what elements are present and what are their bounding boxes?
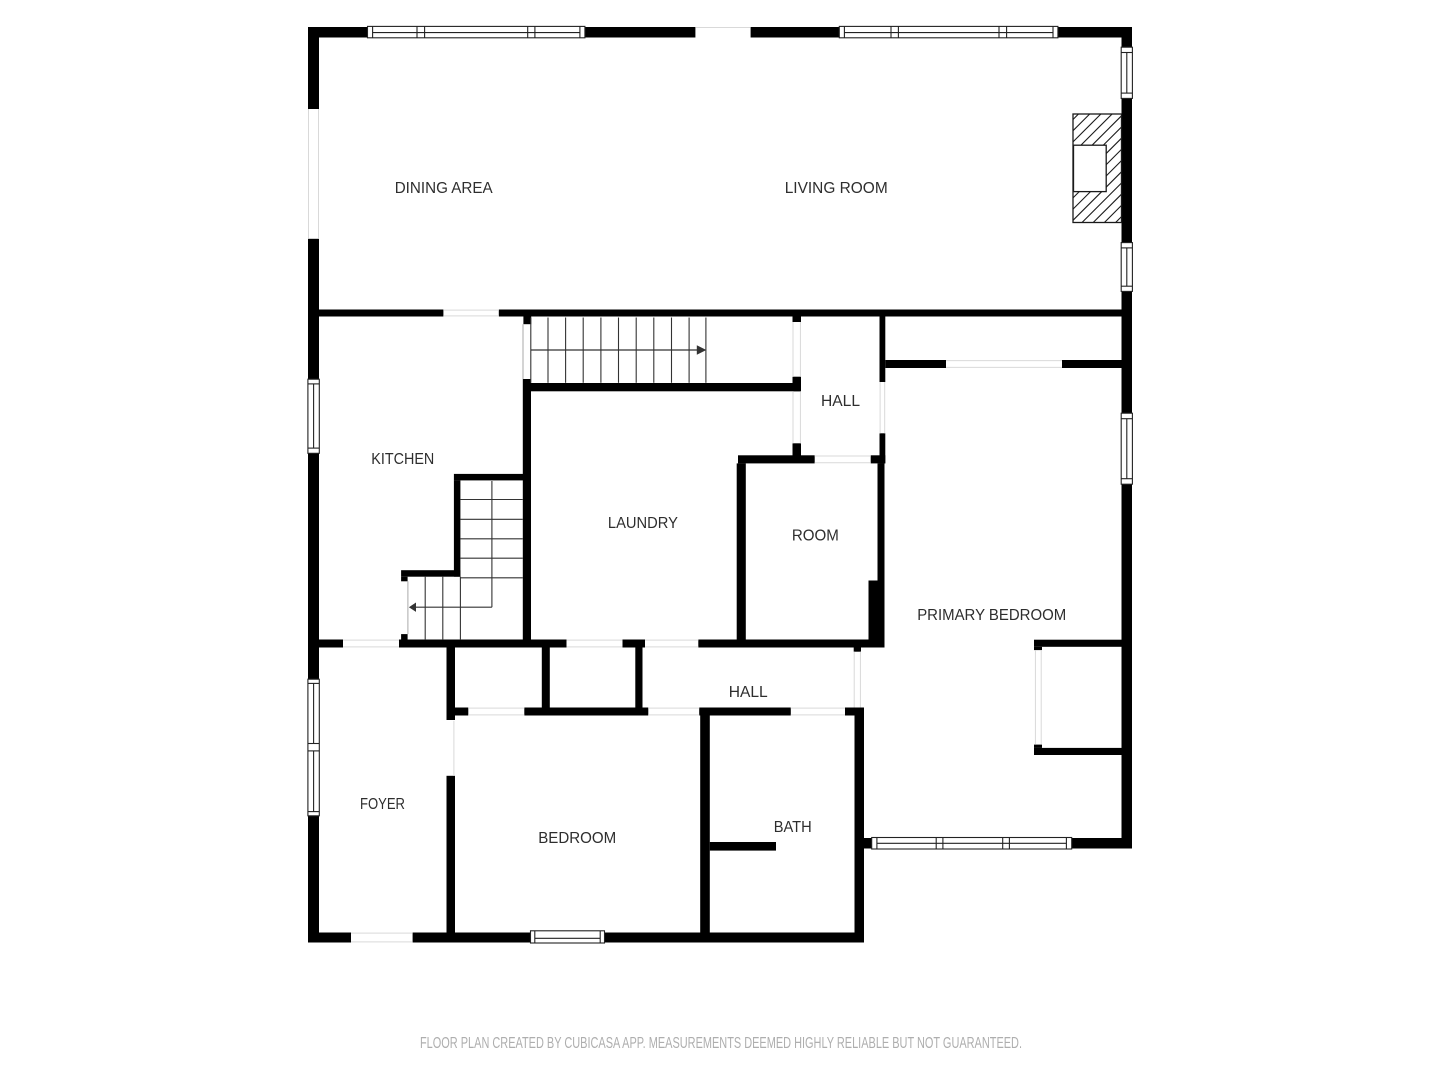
svg-text:HALL: HALL	[821, 393, 860, 410]
svg-text:BEDROOM: BEDROOM	[538, 830, 616, 847]
svg-text:KITCHEN: KITCHEN	[371, 451, 434, 468]
svg-text:LAUNDRY: LAUNDRY	[608, 515, 678, 532]
svg-text:BATH: BATH	[774, 819, 812, 836]
svg-text:PRIMARY BEDROOM: PRIMARY BEDROOM	[917, 607, 1066, 624]
svg-text:FOYER: FOYER	[360, 796, 405, 813]
svg-text:HALL: HALL	[729, 684, 768, 701]
svg-text:ROOM: ROOM	[792, 528, 839, 545]
svg-text:DINING AREA: DINING AREA	[395, 180, 493, 197]
svg-text:LIVING ROOM: LIVING ROOM	[785, 180, 888, 197]
svg-text:FLOOR PLAN CREATED BY CUBICASA: FLOOR PLAN CREATED BY CUBICASA APP. MEAS…	[420, 1035, 1022, 1052]
